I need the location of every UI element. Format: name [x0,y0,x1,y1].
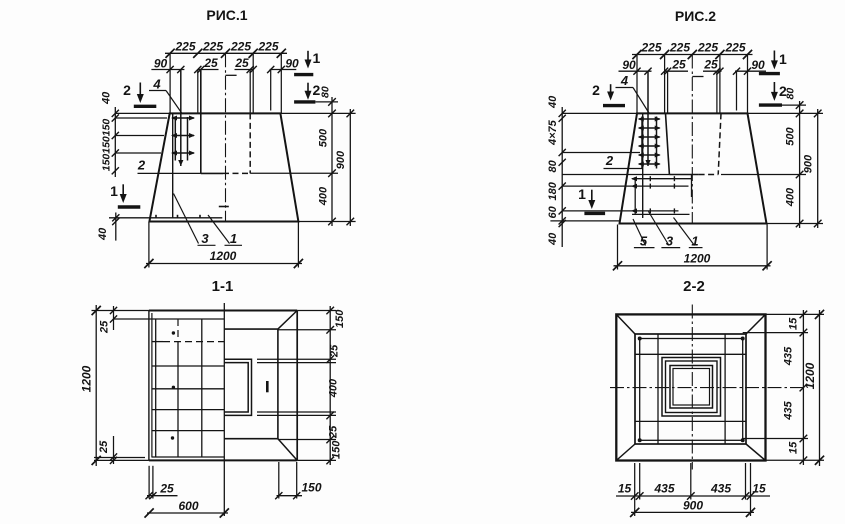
svg-text:225: 225 [724,41,745,55]
svg-text:4: 4 [620,73,629,88]
svg-text:15: 15 [788,441,800,454]
svg-text:900: 900 [803,154,815,173]
svg-text:225: 225 [257,40,278,54]
svg-text:1200: 1200 [684,252,711,266]
svg-text:90: 90 [285,56,299,70]
svg-text:4×75: 4×75 [547,119,559,146]
svg-text:225: 225 [202,40,223,54]
svg-text:40: 40 [97,227,109,241]
svg-text:25: 25 [98,440,110,454]
svg-text:150: 150 [301,481,321,495]
svg-text:25: 25 [703,58,718,72]
svg-text:2-2: 2-2 [683,278,705,295]
svg-text:РИС.2: РИС.2 [675,8,716,24]
svg-text:500: 500 [318,128,330,147]
svg-text:435: 435 [783,400,795,420]
svg-text:4: 4 [152,77,161,92]
svg-text:900: 900 [335,150,347,169]
svg-text:400: 400 [318,186,330,206]
svg-text:150: 150 [334,309,346,328]
svg-text:25: 25 [234,56,249,70]
svg-text:25: 25 [99,320,111,334]
svg-text:1: 1 [110,183,118,199]
svg-text:3: 3 [201,231,209,246]
svg-text:225: 225 [174,40,195,54]
svg-text:1: 1 [691,234,698,249]
svg-text:2: 2 [605,153,614,168]
svg-text:400: 400 [785,187,797,207]
svg-text:25: 25 [328,425,340,439]
svg-text:3: 3 [666,234,674,249]
svg-text:500: 500 [785,126,797,145]
svg-text:25: 25 [671,58,686,72]
svg-text:150: 150 [101,136,113,154]
svg-text:435: 435 [710,482,731,496]
svg-text:25: 25 [159,482,174,496]
svg-text:435: 435 [653,482,674,496]
svg-text:1200: 1200 [80,365,94,392]
svg-text:90: 90 [622,58,636,72]
svg-text:80: 80 [785,88,797,100]
svg-text:15: 15 [618,482,632,496]
svg-text:225: 225 [640,41,661,55]
svg-text:600: 600 [178,499,198,513]
svg-text:15: 15 [788,317,800,330]
svg-text:900: 900 [683,499,703,513]
svg-text:225: 225 [230,40,251,54]
svg-text:40: 40 [547,232,559,246]
svg-text:90: 90 [751,58,765,72]
svg-text:80: 80 [547,159,559,172]
svg-text:15: 15 [752,482,766,496]
svg-text:400: 400 [328,378,340,398]
svg-text:1200: 1200 [803,362,817,389]
svg-text:40: 40 [101,91,113,105]
svg-text:80: 80 [320,86,332,98]
svg-text:150: 150 [101,154,113,172]
svg-text:1: 1 [578,186,586,202]
svg-text:90: 90 [154,56,168,70]
svg-text:2: 2 [137,158,146,173]
svg-text:225: 225 [669,41,690,55]
svg-text:1: 1 [230,231,237,246]
svg-text:25: 25 [329,344,341,358]
svg-text:435: 435 [783,346,795,366]
svg-text:1: 1 [779,51,787,67]
svg-text:1-1: 1-1 [212,278,234,295]
svg-text:25: 25 [203,56,218,70]
svg-text:60: 60 [547,205,559,218]
svg-text:2: 2 [123,82,131,98]
svg-text:1: 1 [313,50,321,66]
svg-text:180: 180 [547,181,559,200]
svg-text:40: 40 [547,95,559,109]
svg-text:150: 150 [101,119,113,137]
svg-text:225: 225 [697,41,718,55]
svg-text:РИС.1: РИС.1 [206,7,247,23]
svg-text:150: 150 [331,440,343,459]
svg-text:5: 5 [640,234,648,249]
svg-text:1200: 1200 [210,249,237,263]
svg-text:2: 2 [592,82,600,98]
